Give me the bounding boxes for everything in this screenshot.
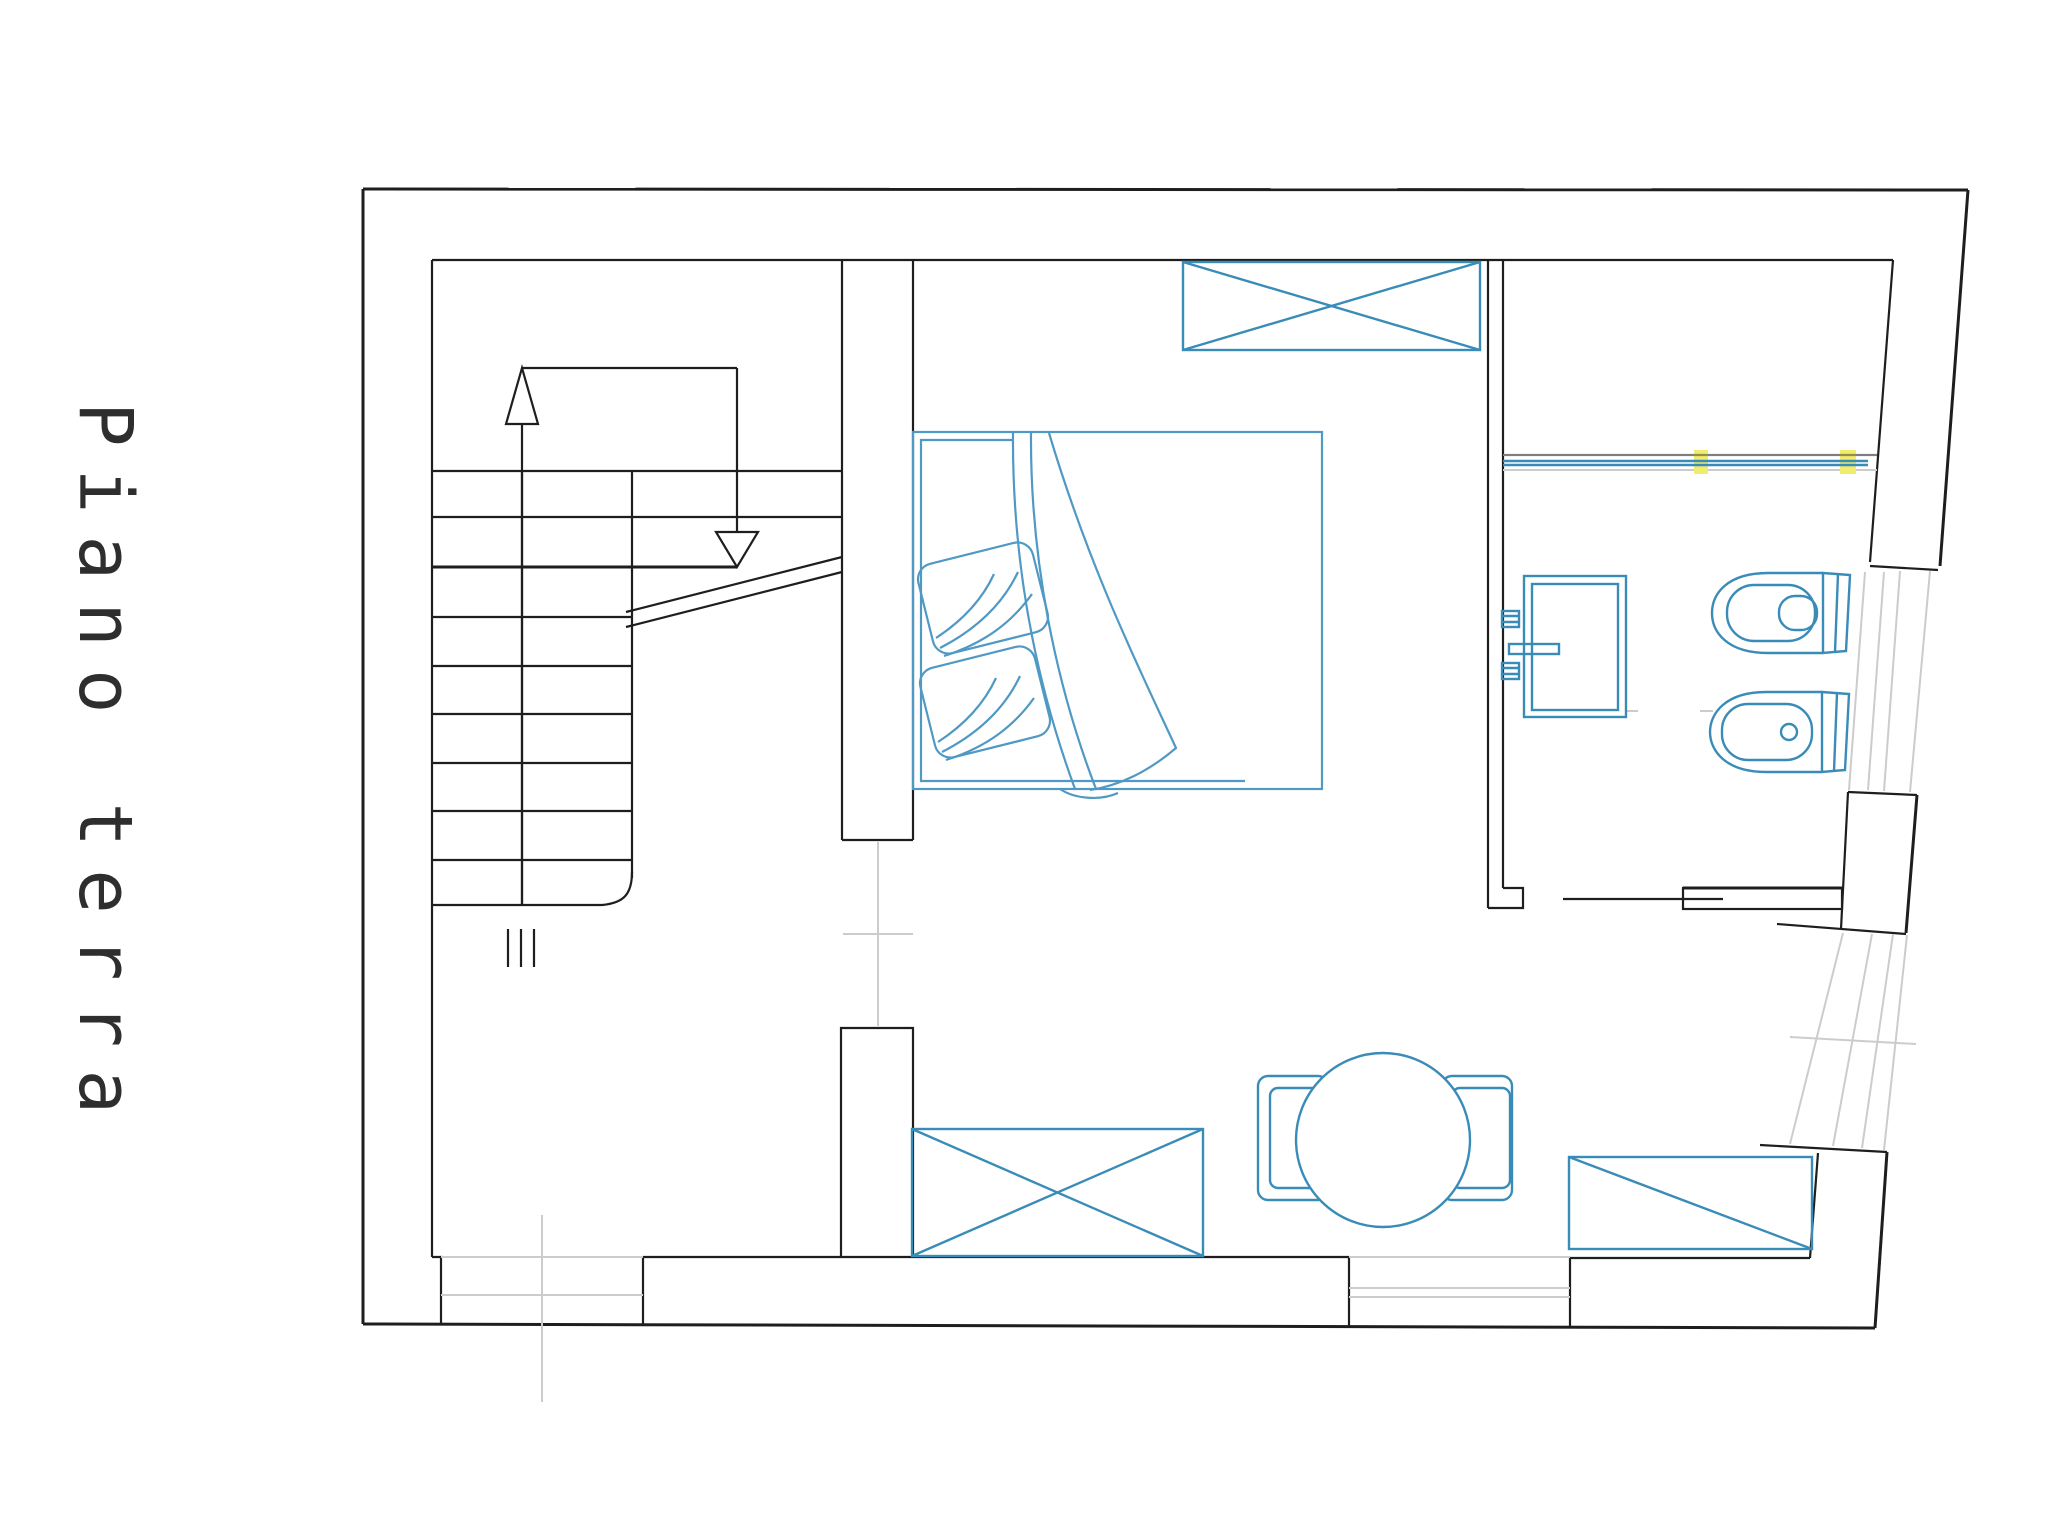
dining-set (1258, 1053, 1512, 1227)
opening-marks (441, 571, 1930, 1402)
bedroom-furniture (913, 262, 1480, 798)
entrance-opening-marks (441, 1215, 643, 1402)
wall-bracket-icon (1502, 663, 1519, 679)
wall-bracket-icon (1502, 611, 1519, 627)
round-dining-table (1296, 1053, 1470, 1227)
down-arrowhead-icon (716, 532, 758, 567)
floor-plan-canvas: Piano terra (0, 0, 2048, 1536)
up-arrowhead-icon (506, 368, 538, 424)
faucet-hole-icon (1781, 724, 1797, 740)
staircase (432, 368, 842, 967)
towel-rail (1503, 450, 1877, 474)
bathroom-fixtures (1502, 450, 1877, 772)
window-lower-right (1790, 933, 1916, 1150)
stair-landing-ticks (508, 929, 534, 967)
double-bed (913, 432, 1322, 798)
toilet (1712, 573, 1850, 653)
bidet (1710, 692, 1849, 772)
drain-icon (1779, 596, 1817, 630)
wardrobe-crossed-box (1183, 262, 1480, 350)
faucet-icon (1509, 644, 1559, 654)
window-upper-right (1849, 571, 1930, 792)
stair-treads (432, 471, 842, 860)
crossed-cabinet (912, 1129, 1203, 1256)
washbasin (1502, 576, 1626, 717)
pillow (915, 539, 1052, 657)
pillow (917, 643, 1054, 761)
floor-plan-drawing (0, 0, 2048, 1536)
living-area-furniture (912, 1053, 1812, 1256)
diagonal-sideboard (1569, 1157, 1812, 1249)
